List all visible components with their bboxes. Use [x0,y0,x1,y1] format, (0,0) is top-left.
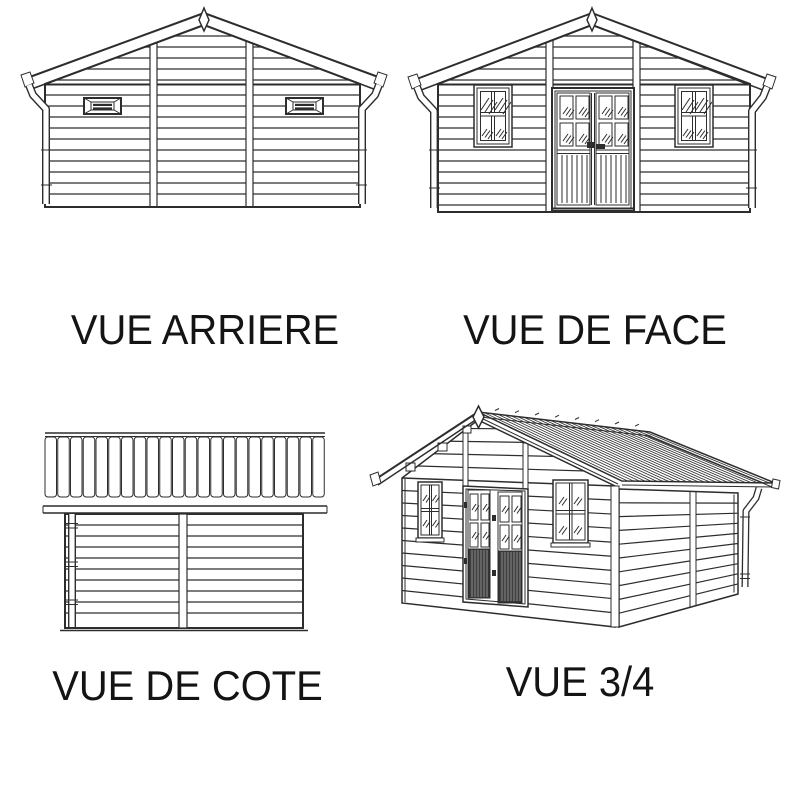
side-wall [65,514,303,628]
window-right [675,85,713,147]
door-handle [596,144,605,149]
side-wall [619,489,738,627]
rear-view-label: VUE ARRIERE [39,306,372,354]
side-view-figure [0,430,400,680]
side-view-label: VUE DE COTE [19,662,356,710]
front-view-drawing [400,0,800,240]
front-view-label: VUE DE FACE [429,306,762,354]
gutter-endcap [772,479,781,489]
downspout [740,488,759,587]
corner-post [611,486,619,627]
side-view-drawing [0,430,400,680]
vent-right [286,98,323,114]
window-left [474,85,512,147]
roof-sheets [45,433,325,497]
double-door [552,88,634,211]
fascia-board [43,506,327,513]
downspout-left [417,87,440,208]
roof-finial [587,8,597,31]
gutter [622,485,774,487]
vent-left [84,98,121,114]
double-door [463,486,528,607]
downspout-left [29,85,52,204]
three-quarter-view-label: VUE 3/4 [438,658,723,706]
downspout [66,514,78,627]
technical-drawing-sheet: VUE ARRIERE VUE DE FACE VUE DE COTE VUE … [0,0,800,800]
window-left [416,482,444,542]
door-lock [587,142,595,148]
roof-finial [473,406,484,428]
window-right [551,480,590,547]
front-view-figure [400,0,800,240]
rear-view-drawing [0,0,400,240]
roof-finial [199,8,209,31]
rear-view-figure [0,0,400,240]
